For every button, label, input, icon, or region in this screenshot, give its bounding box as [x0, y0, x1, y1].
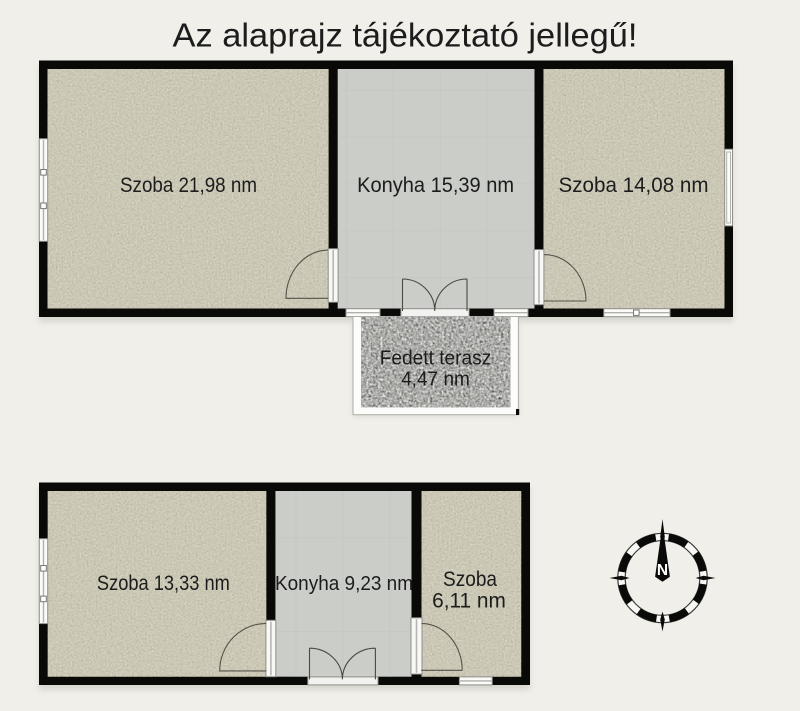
svg-text:Szoba 14,08 nm: Szoba 14,08 nm: [559, 173, 709, 197]
svg-text:Konyha 15,39 nm: Konyha 15,39 nm: [357, 173, 514, 197]
svg-text:Konyha 9,23 nm: Konyha 9,23 nm: [275, 573, 413, 595]
svg-text:Az alaprajz tájékoztató jelleg: Az alaprajz tájékoztató jellegű!: [173, 17, 638, 54]
svg-text:6,11 nm: 6,11 nm: [432, 589, 506, 613]
svg-text:4,47 nm: 4,47 nm: [401, 368, 470, 391]
svg-text:N: N: [657, 562, 668, 579]
svg-text:Szoba: Szoba: [443, 567, 497, 591]
svg-text:Fedett terasz: Fedett terasz: [380, 346, 492, 369]
svg-text:Szoba 21,98 nm: Szoba 21,98 nm: [120, 173, 257, 197]
svg-text:Szoba 13,33 nm: Szoba 13,33 nm: [97, 571, 230, 595]
